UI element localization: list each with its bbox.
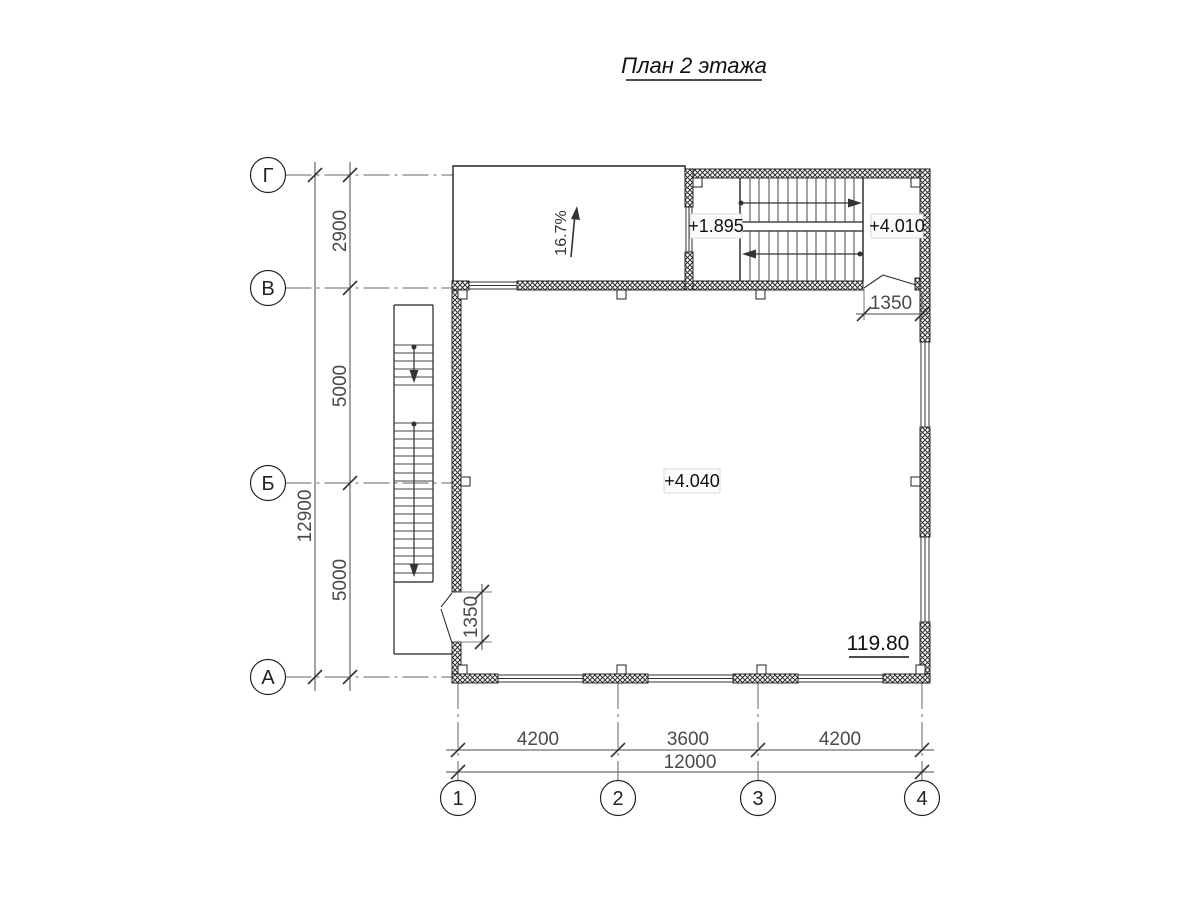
top-wall-main	[517, 281, 685, 290]
bottom-wall-seg-2	[583, 674, 648, 683]
stair-direction-arrow-down	[742, 250, 863, 259]
elevation-stair-landing: +1.895	[688, 214, 744, 238]
outdoor-stair	[394, 305, 452, 654]
elevation-value: +1.895	[688, 216, 744, 236]
dim-left-segment-3: 5000	[330, 559, 351, 601]
axis-label: 1	[452, 788, 463, 810]
bottom-dimensions: 4200 3600 4200 12000	[446, 729, 934, 779]
dim-left-segment-2: 5000	[330, 365, 351, 407]
axis-bubble-row-a: А	[251, 660, 286, 695]
window-bottom-2	[648, 675, 733, 682]
axis-label: В	[261, 278, 274, 300]
walls	[452, 169, 930, 683]
stair-direction-arrow-up	[739, 199, 863, 208]
windows	[469, 207, 929, 682]
window-top-wall	[469, 282, 517, 289]
right-arrow-icon	[848, 199, 862, 208]
elevation-value: +4.040	[664, 471, 720, 491]
floor-plan-page: План 2 этажа 2900 5000 5000 12900	[0, 0, 1200, 900]
datum-value: 119.80	[847, 632, 910, 655]
stair-treads-upper	[750, 178, 854, 222]
elevation-value: +4.010	[869, 216, 925, 236]
left-arrow-icon	[742, 250, 756, 259]
bottom-wall-seg-3	[733, 674, 798, 683]
axis-label: А	[261, 667, 275, 689]
right-wall-top	[920, 169, 930, 342]
top-wall-corner-pier	[452, 281, 469, 290]
stair-treads-lower	[750, 231, 854, 281]
window-bottom-3	[798, 675, 883, 682]
window-bottom-1	[498, 675, 583, 682]
drawing-title: План 2 этажа	[621, 53, 767, 80]
elevation-floor: +4.040	[664, 469, 720, 493]
axis-label: 2	[612, 788, 623, 810]
left-door-width: 1350	[461, 596, 482, 638]
door-swing-icon	[441, 593, 452, 643]
axis-bubble-row-g: Г	[251, 158, 286, 193]
dim-bottom-segment-3: 4200	[819, 729, 861, 750]
stairwell-left-wall-lower	[685, 252, 693, 290]
stair-door-width: 1350	[870, 293, 912, 314]
left-dimensions: 2900 5000 5000 12900	[295, 162, 357, 691]
bottom-wall-seg-4	[883, 674, 930, 683]
axis-bubble-row-v: В	[251, 271, 286, 306]
floor-plan-drawing: План 2 этажа 2900 5000 5000 12900	[0, 0, 1200, 900]
bottom-wall-seg-1	[452, 674, 498, 683]
axis-label: 3	[752, 788, 763, 810]
stairwell-top-wall	[685, 169, 930, 178]
elevation-labels: +1.895 +4.010 +4.040 119.80	[664, 214, 925, 657]
ramp-slope: 16.7%	[553, 206, 580, 257]
right-wall-middle	[920, 427, 930, 537]
axis-bubble-row-b: Б	[251, 466, 286, 501]
left-wall-upper	[452, 290, 461, 592]
axis-bubbles: Г В Б А 1 2 3 4	[251, 158, 940, 816]
dim-left-segment-1: 2900	[330, 210, 351, 252]
outdoor-stair-arrow-2	[410, 422, 419, 578]
stairwell-bottom-wall	[693, 281, 863, 290]
dim-bottom-total: 12000	[664, 752, 717, 773]
axis-label: 4	[916, 788, 927, 810]
axis-bubble-col-2: 2	[601, 781, 636, 816]
down-arrow-icon	[410, 564, 419, 577]
axis-bubble-col-3: 3	[741, 781, 776, 816]
ramp-slope-label: 16.7%	[553, 210, 570, 255]
stairwell-stairs	[739, 178, 864, 281]
elevation-stair-top: +4.010	[869, 214, 925, 238]
axis-bubble-col-1: 1	[441, 781, 476, 816]
dim-bottom-segment-2: 3600	[667, 729, 709, 750]
page-title: План 2 этажа	[621, 53, 767, 78]
dim-bottom-segment-1: 4200	[517, 729, 559, 750]
axis-label: Б	[261, 473, 274, 495]
axis-label: Г	[263, 165, 274, 187]
stairwell-left-wall-upper	[685, 169, 693, 207]
left-door: 1350	[441, 584, 492, 650]
dim-left-total: 12900	[295, 490, 316, 543]
up-arrow-icon	[571, 206, 580, 220]
window-right-1	[921, 342, 929, 427]
door-swing-icon	[864, 275, 916, 288]
axis-bubble-col-4: 4	[905, 781, 940, 816]
window-right-2	[921, 537, 929, 622]
axis-centerlines	[286, 175, 923, 780]
datum-mark: 119.80	[847, 632, 910, 657]
